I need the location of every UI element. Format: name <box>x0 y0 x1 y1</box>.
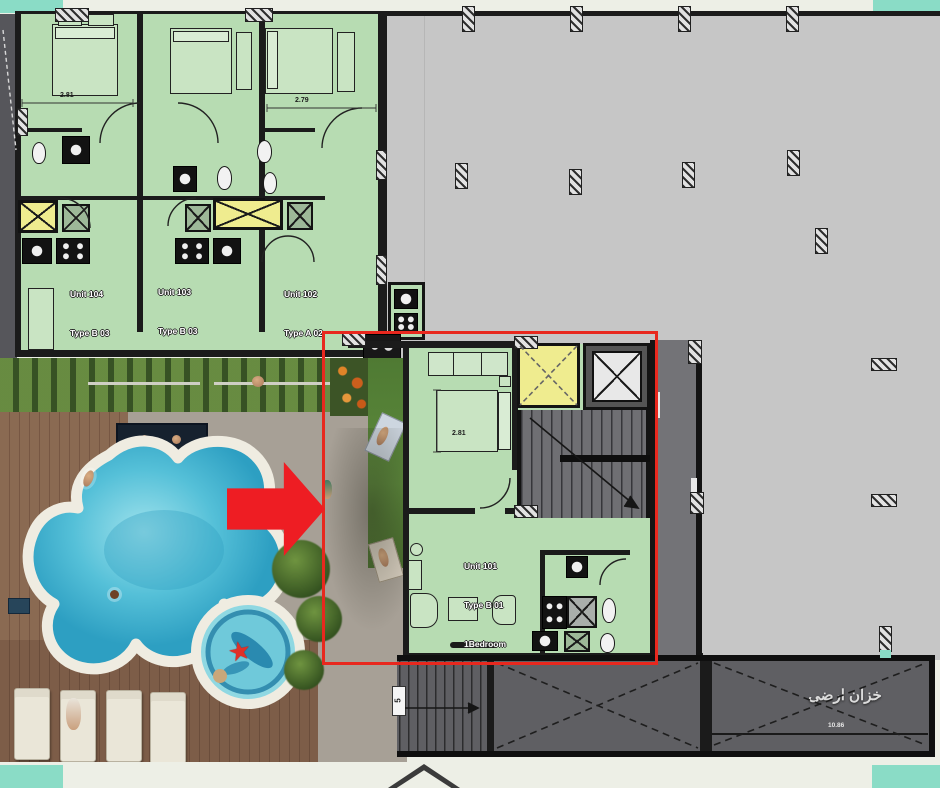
nightstand <box>88 14 114 26</box>
column <box>879 626 892 652</box>
bath-wall <box>265 196 325 200</box>
north-chevron-icon <box>388 764 460 788</box>
kitchen-sink-icon <box>22 238 52 264</box>
column <box>690 492 704 514</box>
column <box>569 169 582 195</box>
bush <box>284 650 324 690</box>
tank-divider-wall <box>700 661 712 751</box>
planter-rail <box>88 382 200 385</box>
sink-icon <box>173 166 197 192</box>
dim-label: 2.81 <box>60 92 74 99</box>
stove-icon <box>56 238 90 264</box>
person-standing <box>66 698 81 730</box>
stove-icon <box>394 313 418 333</box>
bed-pillows <box>173 31 229 42</box>
unit-type: Type B 03 <box>158 325 203 338</box>
sink-icon <box>62 136 90 164</box>
column <box>815 228 828 254</box>
bath-wall <box>265 128 315 132</box>
column <box>55 8 89 22</box>
toilet-icon <box>32 142 46 164</box>
unit-name: Unit 102 <box>284 288 329 301</box>
unit-name: Unit 104 <box>70 288 115 301</box>
column-teal-base <box>880 650 891 658</box>
floor-plan-canvas: Unit 104 Type B 03 1Bedroom Area 40 m2 4… <box>0 0 940 788</box>
column <box>245 8 273 22</box>
duct-box <box>62 204 90 232</box>
column <box>688 340 702 364</box>
tank-dim-line <box>712 733 928 735</box>
bath-wall <box>20 128 82 132</box>
column <box>376 150 387 180</box>
column <box>682 162 695 188</box>
column <box>376 255 387 285</box>
corner-mark-bottom-right <box>872 765 940 788</box>
bed-pillows <box>55 27 115 39</box>
bed-pillows <box>267 31 278 89</box>
swimmer <box>110 590 119 599</box>
sun-lounger <box>106 690 142 762</box>
pool-ladder <box>8 598 30 614</box>
ramp-label: 5 <box>394 698 403 702</box>
column <box>871 494 897 507</box>
column <box>871 358 897 371</box>
ramp-label-box: 5 <box>392 686 406 716</box>
ramp-wall <box>487 661 494 751</box>
column <box>462 6 475 32</box>
unit-name: Unit 103 <box>158 286 203 299</box>
tank-dim-label: 10.86 <box>828 722 844 729</box>
toilet-icon <box>217 166 232 190</box>
bidet-icon <box>263 172 277 194</box>
column <box>17 108 28 136</box>
unit-type: Type B 03 <box>70 327 115 340</box>
wardrobe <box>337 32 355 92</box>
column <box>787 150 800 176</box>
column <box>786 6 799 32</box>
sink-icon <box>394 289 418 309</box>
shaft-box <box>18 200 58 233</box>
unit-101-highlight-box <box>322 331 658 665</box>
pedestrian <box>252 376 264 387</box>
corner-mark-bottom-left <box>0 765 63 788</box>
wardrobe <box>28 288 54 350</box>
ramp <box>399 661 487 751</box>
toilet-icon <box>257 140 272 163</box>
column <box>570 6 583 32</box>
kitchen-sink-icon <box>213 238 241 264</box>
duct-box <box>185 204 211 232</box>
hedge-band <box>0 358 368 412</box>
planter-rail <box>214 382 332 385</box>
tank-label: خزان ارضى <box>770 686 920 704</box>
column <box>455 163 468 189</box>
sun-lounger <box>150 692 186 762</box>
closet <box>236 32 252 90</box>
dim-label: 2.79 <box>295 97 309 104</box>
sun-lounger <box>14 688 50 760</box>
column <box>678 6 691 32</box>
